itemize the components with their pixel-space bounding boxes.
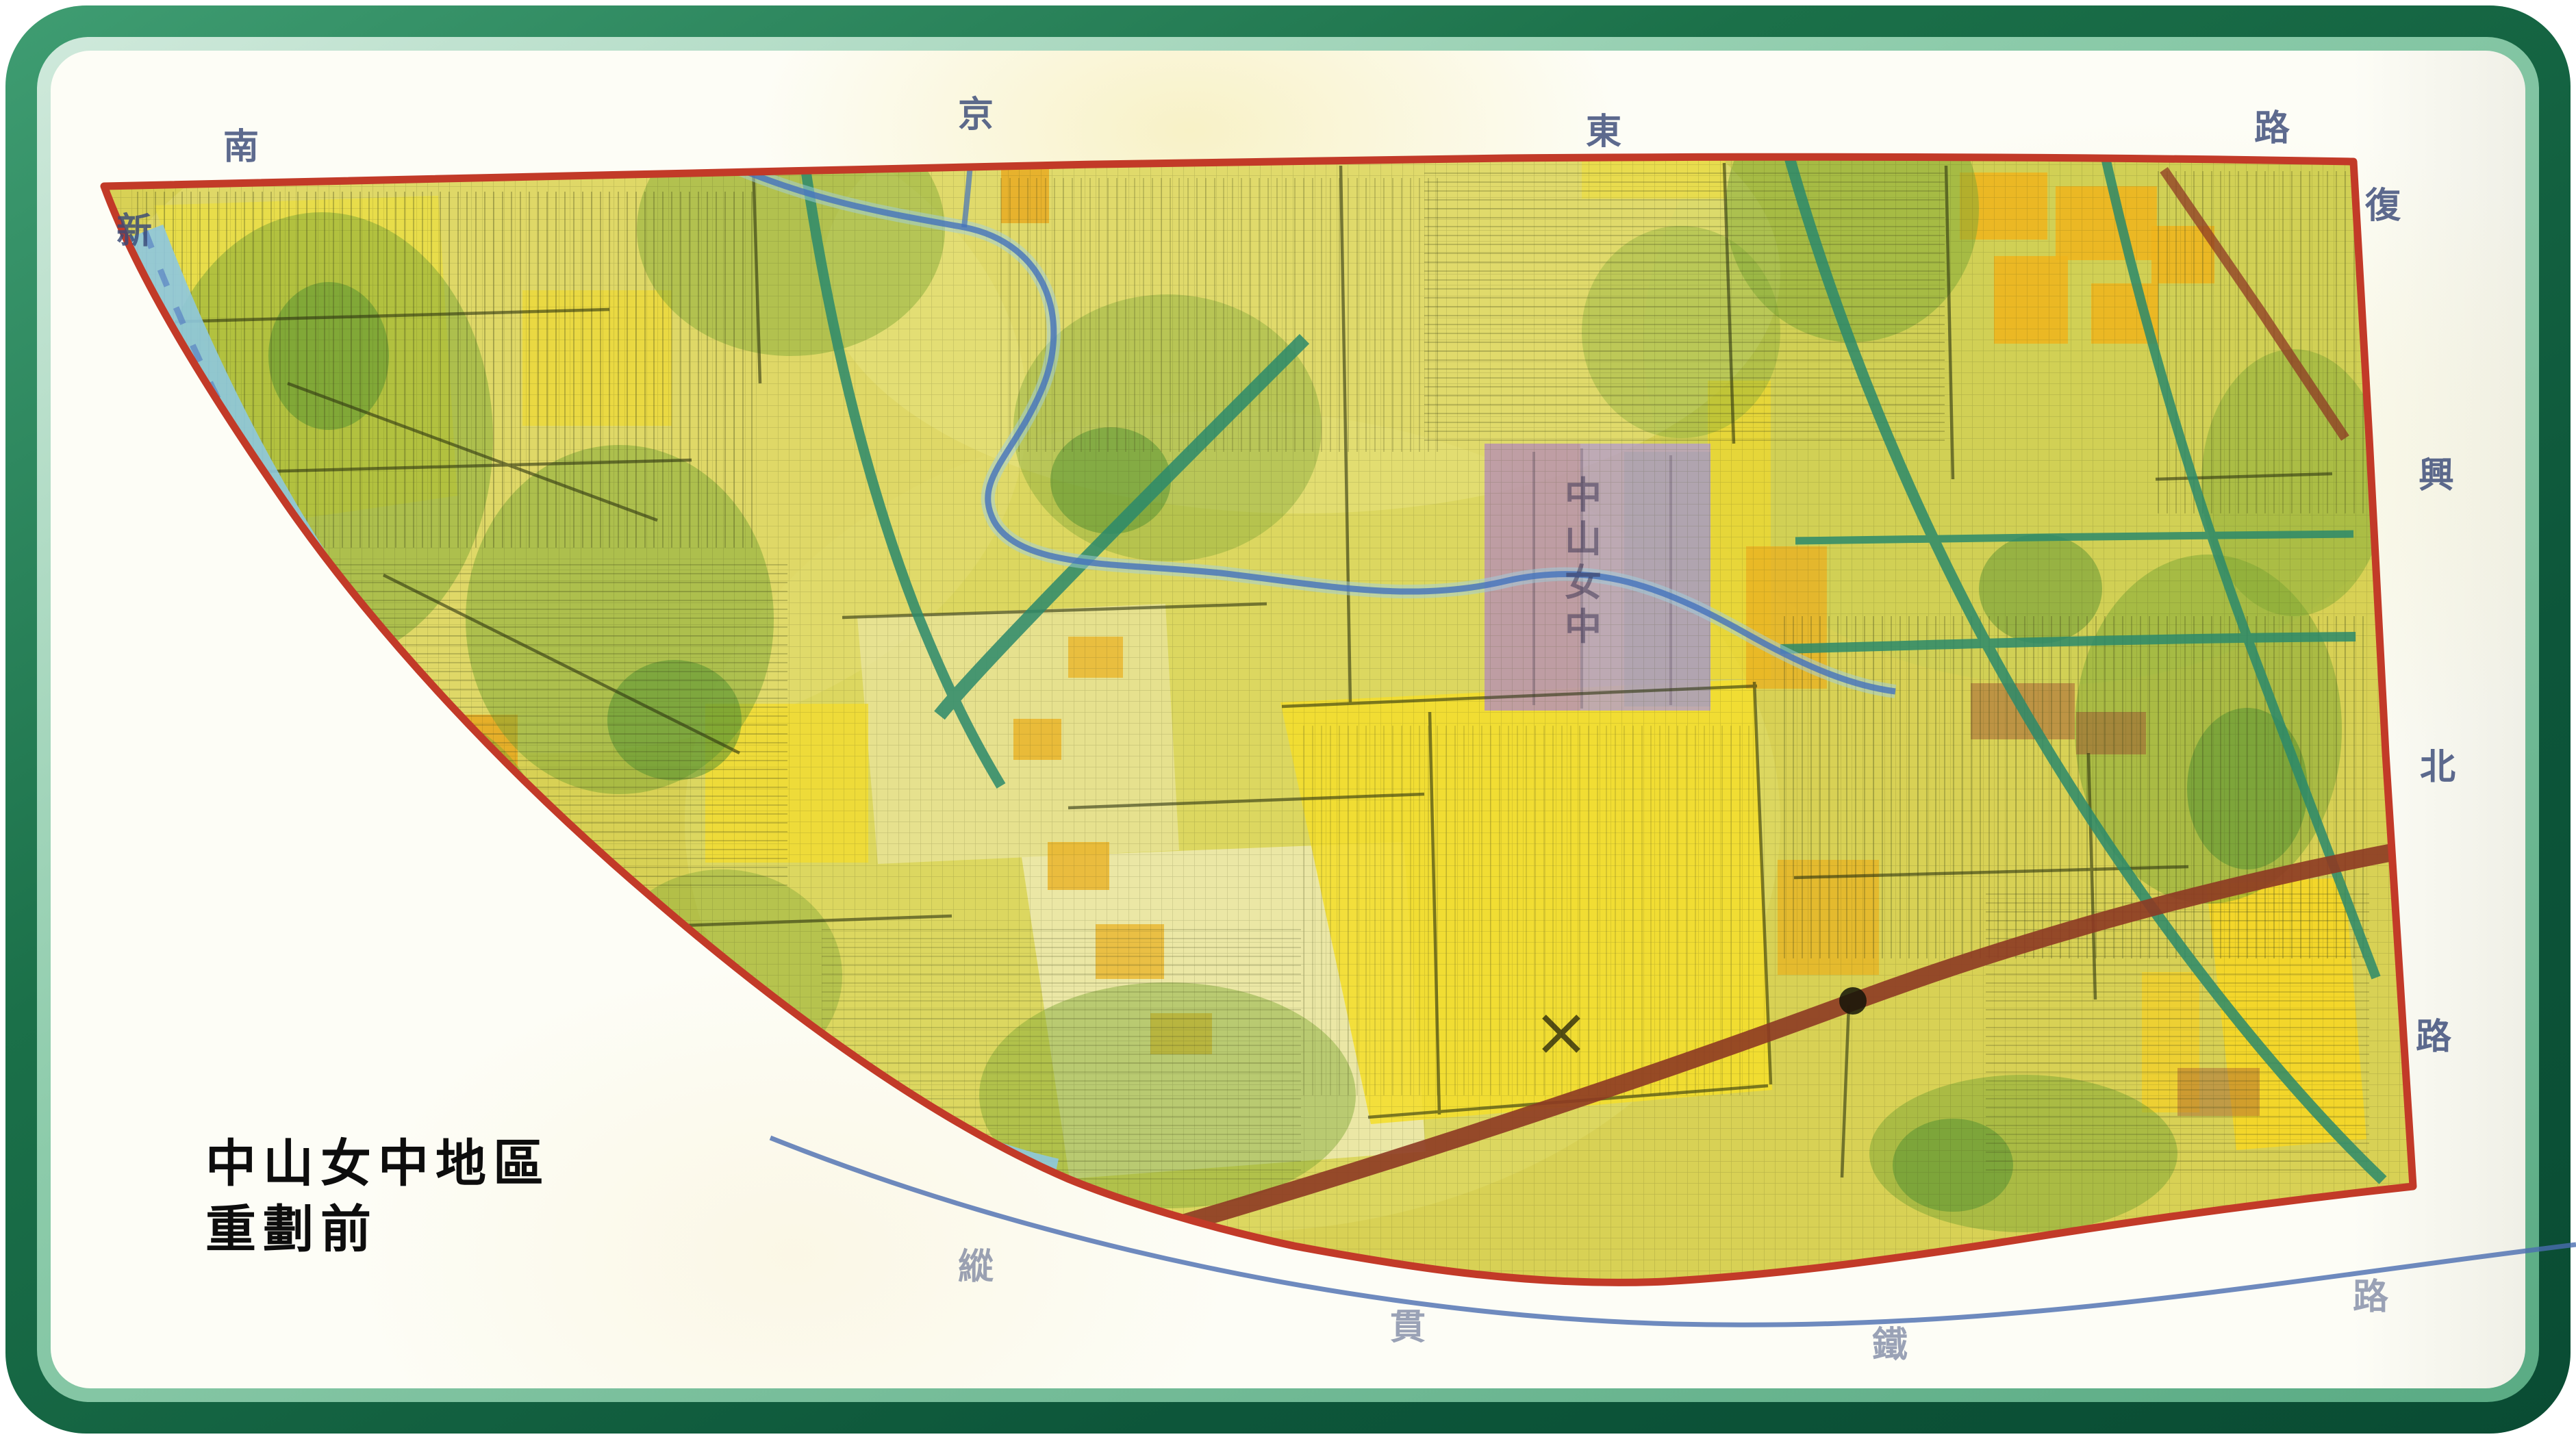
school-label-char: 山: [1565, 518, 1602, 561]
map-title-line2: 重劃前: [205, 1197, 551, 1262]
school-label-char: 中: [1565, 474, 1602, 517]
edge-label-right: 興: [2419, 455, 2454, 496]
edge-label-right: 北: [2420, 747, 2455, 788]
edge-label-bottom: 縱: [958, 1247, 994, 1288]
map-area: 中 山 女 中: [68, 0, 2465, 1290]
junction-dot: [1839, 987, 1867, 1015]
edge-label-right: 復: [2364, 186, 2401, 227]
edge-label-right: 路: [2416, 1017, 2452, 1058]
edge-label-bottom: 貫: [1390, 1307, 1426, 1348]
map-title: 中山女中地區 重劃前: [205, 1131, 551, 1262]
edge-label-top: 南: [223, 127, 259, 168]
edge-label-bottom: 路: [2353, 1277, 2389, 1318]
edge-label-bottom: 鐵: [1872, 1325, 1908, 1366]
scanned-map-page: 中 山 女 中 南 京 東 路 新 復 興 北 路 縱 貫 鐵 路 中山女中地區…: [0, 0, 2576, 1439]
edge-label-top: 路: [2254, 108, 2290, 149]
school-label-char: 中: [1565, 605, 1602, 648]
edge-label-top: 京: [958, 94, 994, 136]
school-label-char: 女: [1565, 561, 1602, 604]
edge-label-top: 東: [1586, 112, 1621, 153]
parcel-texture: [96, 147, 2421, 1290]
map-title-line1: 中山女中地區: [205, 1131, 551, 1197]
school-label: 中 山 女 中: [1565, 474, 1602, 648]
edge-label-left: 新: [116, 211, 152, 252]
